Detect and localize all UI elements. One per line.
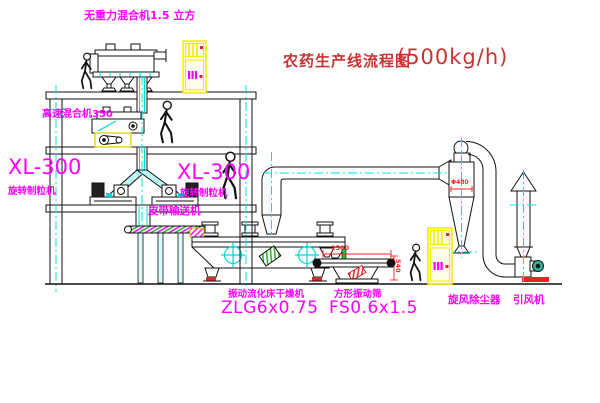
person-ground [411,244,421,280]
person-floor3 [223,152,236,198]
high-speed-mixer [92,107,144,147]
vibrating-screen [313,248,398,283]
control-cabinet-roof [183,41,206,93]
gravity-free-mixer [90,44,166,113]
control-cabinet-ground [428,228,452,284]
exhaust-duct [262,160,451,234]
person-floor2 [161,101,172,142]
diagram-stage: 农药生产线流程图 (500kg/h) 无重力混合机1.5 立方 高速混合机350… [0,0,600,403]
diagram-canvas [0,0,600,403]
induced-draft-fan [515,247,549,282]
